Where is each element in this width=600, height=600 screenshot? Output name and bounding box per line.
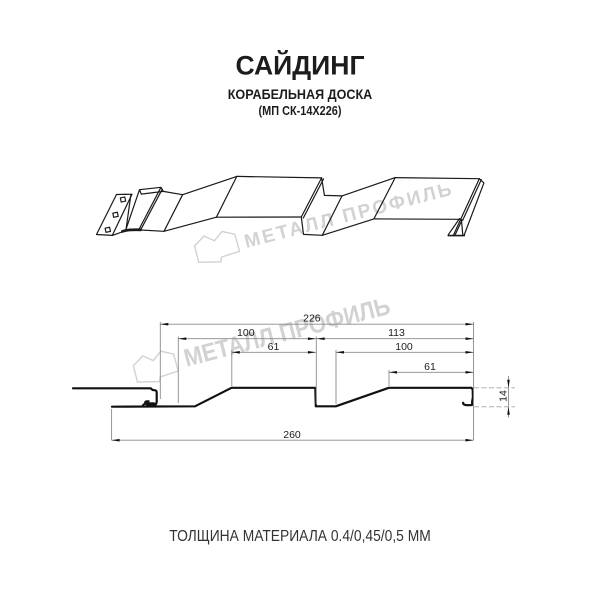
svg-text:ТОЛЩИНА МАТЕРИАЛА 0.4/0,45/0,5: ТОЛЩИНА МАТЕРИАЛА 0.4/0,45/0,5 ММ	[169, 528, 431, 545]
svg-text:САЙДИНГ: САЙДИНГ	[236, 49, 365, 80]
svg-text:100: 100	[395, 341, 413, 353]
svg-text:226: 226	[303, 313, 321, 325]
svg-text:КОРАБЕЛЬНАЯ ДОСКА: КОРАБЕЛЬНАЯ ДОСКА	[228, 87, 373, 102]
svg-text:260: 260	[283, 429, 301, 441]
svg-text:(МП СК-14Х226): (МП СК-14Х226)	[259, 104, 342, 118]
svg-text:61: 61	[424, 361, 436, 373]
svg-text:61: 61	[268, 341, 280, 353]
svg-text:100: 100	[237, 327, 255, 339]
svg-text:113: 113	[388, 327, 405, 339]
svg-text:14: 14	[498, 390, 510, 402]
